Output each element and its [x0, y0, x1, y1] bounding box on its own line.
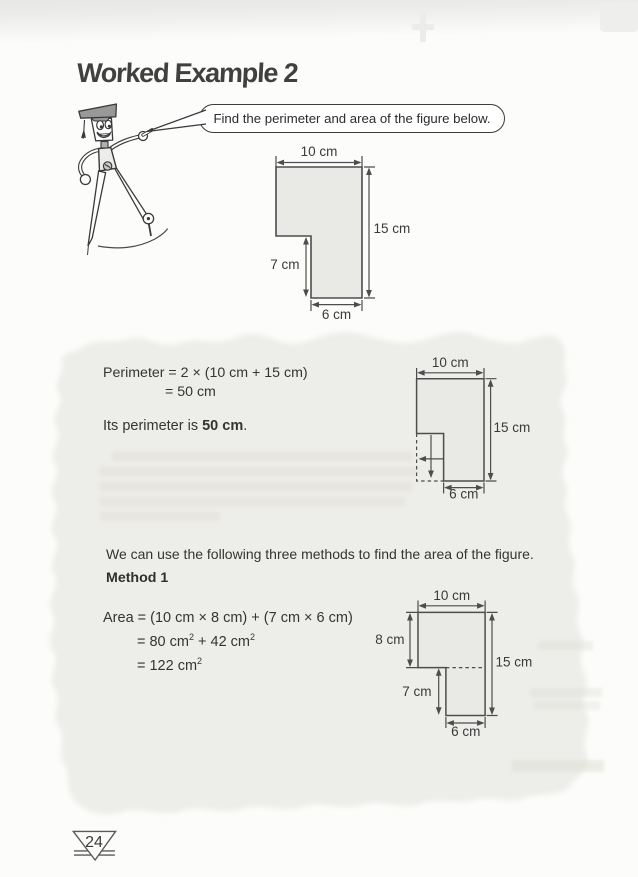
- svg-text:15 cm: 15 cm: [496, 655, 533, 670]
- svg-text:15 cm: 15 cm: [494, 420, 531, 435]
- svg-text:10 cm: 10 cm: [301, 144, 338, 159]
- svg-text:10 cm: 10 cm: [432, 355, 469, 370]
- svg-text:7 cm: 7 cm: [402, 684, 431, 699]
- svg-text:15 cm: 15 cm: [374, 221, 411, 236]
- svg-text:8 cm: 8 cm: [375, 632, 404, 647]
- svg-text:7 cm: 7 cm: [270, 257, 299, 272]
- svg-text:6 cm: 6 cm: [451, 724, 480, 739]
- svg-text:24: 24: [85, 834, 103, 851]
- svg-text:10 cm: 10 cm: [433, 588, 470, 603]
- svg-text:6 cm: 6 cm: [449, 487, 478, 502]
- svg-text:6 cm: 6 cm: [322, 307, 351, 322]
